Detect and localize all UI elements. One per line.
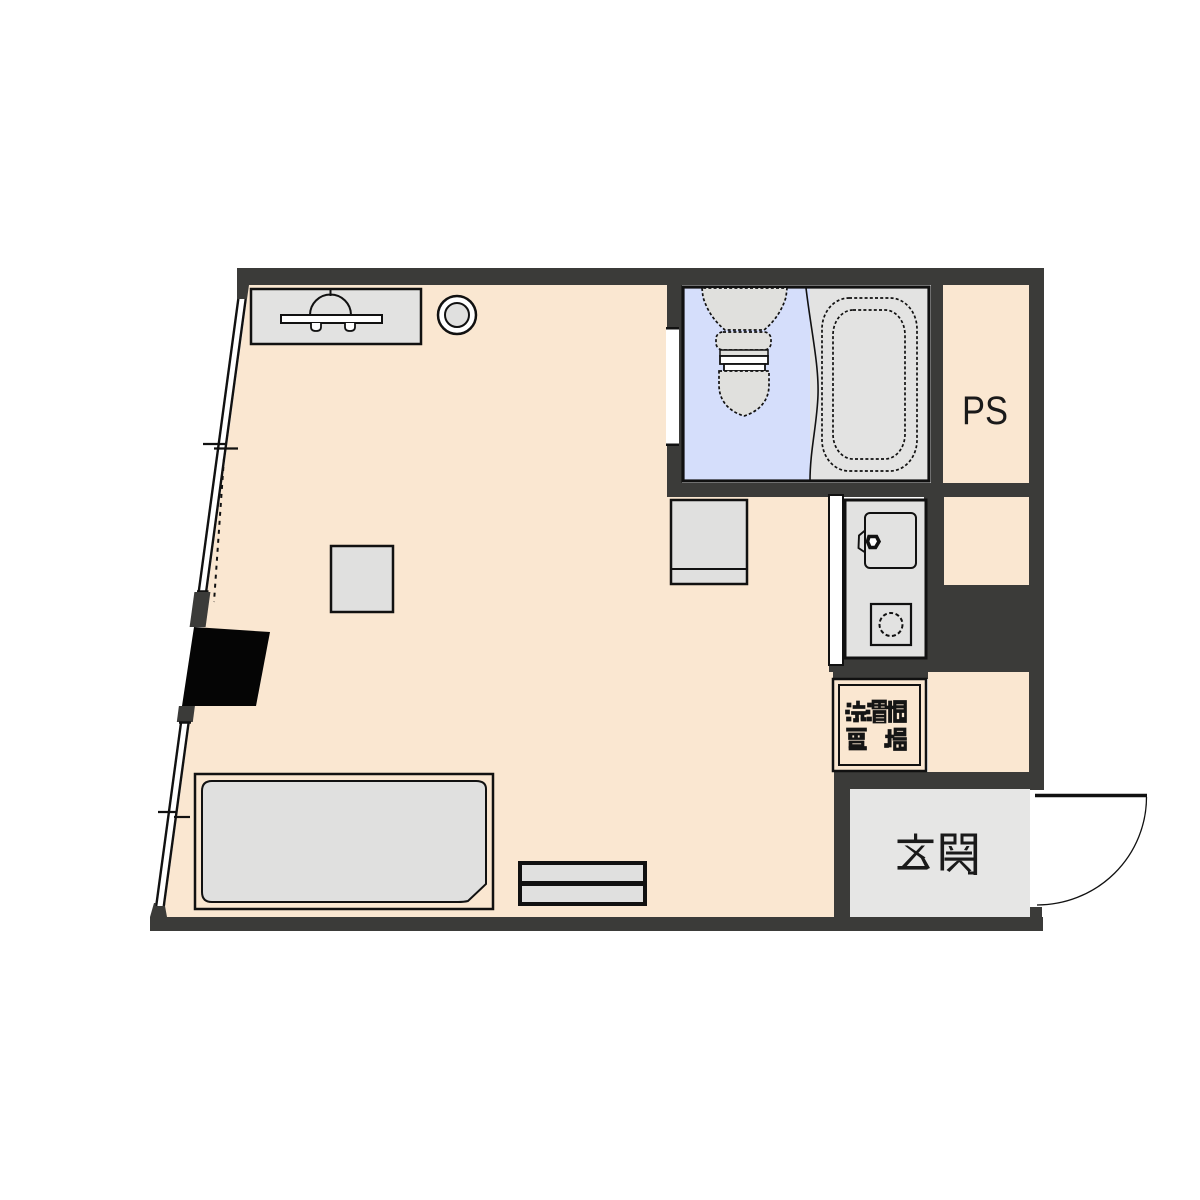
svg-text:PS: PS <box>962 389 1008 433</box>
